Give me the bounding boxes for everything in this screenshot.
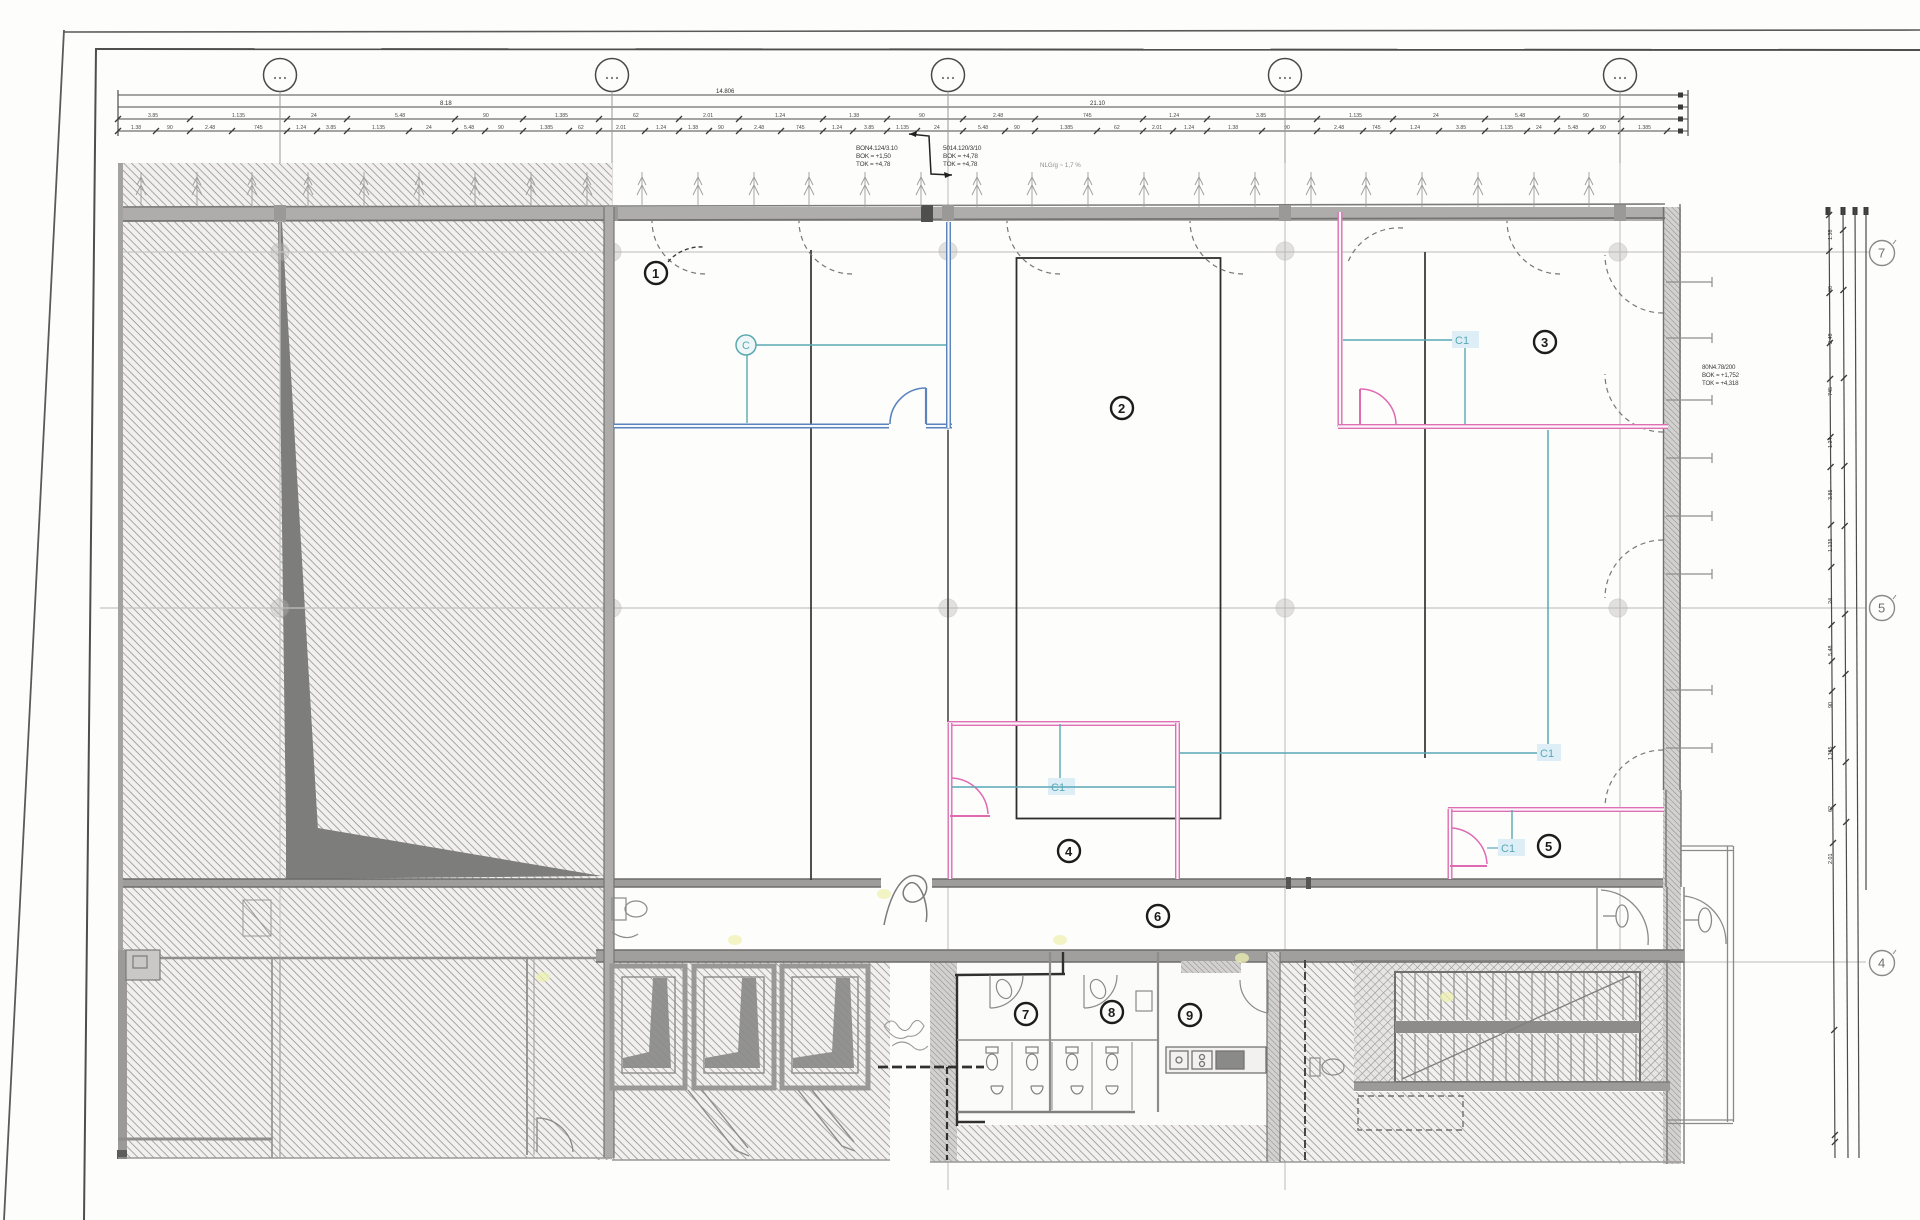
svg-text:62: 62 (578, 125, 584, 131)
svg-text:1.135: 1.135 (896, 125, 909, 131)
svg-text:BOK = +1,752: BOK = +1,752 (1702, 372, 1740, 379)
svg-text:1.24: 1.24 (1169, 113, 1179, 119)
svg-text:1.385: 1.385 (1638, 125, 1651, 131)
svg-text:90: 90 (483, 113, 489, 119)
svg-text:1.38: 1.38 (1228, 125, 1238, 131)
svg-text:24: 24 (1536, 125, 1542, 131)
svg-text:24: 24 (1433, 113, 1439, 119)
svg-text:NLG/g ~ 1,7 %: NLG/g ~ 1,7 % (1040, 162, 1081, 169)
svg-text:1.24: 1.24 (296, 125, 306, 131)
svg-text:745: 745 (1372, 125, 1381, 131)
svg-text:1.385: 1.385 (555, 113, 568, 119)
svg-text:90: 90 (498, 125, 504, 131)
svg-text:C1: C1 (1051, 782, 1065, 794)
svg-text:1.385: 1.385 (540, 125, 553, 131)
svg-text:90: 90 (1828, 286, 1834, 292)
svg-text:7: 7 (1878, 246, 1885, 261)
svg-text:C: C (742, 340, 750, 352)
svg-text:BON4.124/3.10: BON4.124/3.10 (856, 145, 898, 152)
svg-text:5.48: 5.48 (464, 125, 474, 131)
svg-text:5.48: 5.48 (1828, 646, 1834, 657)
svg-text:24: 24 (311, 113, 317, 119)
svg-text:62: 62 (1114, 125, 1120, 131)
svg-text:8: 8 (1108, 1005, 1115, 1020)
svg-text:5: 5 (1878, 601, 1885, 616)
svg-text:1.24: 1.24 (656, 125, 666, 131)
svg-text:5014.120/3/10: 5014.120/3/10 (943, 145, 982, 152)
svg-text:90: 90 (718, 125, 724, 131)
svg-text:1.24: 1.24 (832, 125, 842, 131)
svg-text:1.24: 1.24 (775, 113, 785, 119)
svg-text:4: 4 (1878, 956, 1885, 971)
svg-text:90: 90 (1600, 125, 1606, 131)
svg-text:2.01: 2.01 (616, 125, 626, 131)
svg-text:2.01: 2.01 (1828, 854, 1834, 865)
svg-text:1: 1 (652, 266, 659, 281)
svg-text:4: 4 (1065, 844, 1073, 859)
svg-text:745: 745 (1828, 387, 1834, 396)
svg-text:3: 3 (1541, 335, 1548, 350)
svg-text:90: 90 (1828, 702, 1834, 708)
svg-text:2.48: 2.48 (754, 125, 764, 131)
svg-text:3.85: 3.85 (1256, 113, 1266, 119)
svg-text:1.385: 1.385 (1828, 747, 1834, 761)
svg-text:3.85: 3.85 (148, 113, 158, 119)
svg-text:1.38: 1.38 (688, 125, 698, 131)
svg-text:C1: C1 (1540, 748, 1554, 760)
svg-text:8.18: 8.18 (440, 101, 452, 107)
svg-text:90: 90 (1583, 113, 1589, 119)
svg-text:3.85: 3.85 (1456, 125, 1466, 131)
svg-text:1.135: 1.135 (372, 125, 385, 131)
svg-text:1.24: 1.24 (1184, 125, 1194, 131)
svg-text:14.806: 14.806 (716, 89, 735, 95)
svg-text:745: 745 (1083, 113, 1092, 119)
svg-text:1.135: 1.135 (1500, 125, 1513, 131)
svg-text:745: 745 (796, 125, 805, 131)
svg-text:3.85: 3.85 (326, 125, 336, 131)
svg-text:90: 90 (1014, 125, 1020, 131)
svg-text:90: 90 (919, 113, 925, 119)
svg-text:C1: C1 (1455, 335, 1469, 347)
svg-text:1.24: 1.24 (1828, 438, 1834, 449)
svg-text:1.135: 1.135 (1828, 539, 1834, 553)
svg-text:3.85: 3.85 (864, 125, 874, 131)
svg-text:745: 745 (254, 125, 263, 131)
svg-text:9: 9 (1186, 1008, 1193, 1023)
svg-text:1.24: 1.24 (1410, 125, 1420, 131)
svg-text:1.135: 1.135 (232, 113, 245, 119)
svg-text:2.01: 2.01 (1152, 125, 1162, 131)
svg-text:21.10: 21.10 (1090, 101, 1106, 107)
svg-text:5.48: 5.48 (978, 125, 988, 131)
svg-text:2.48: 2.48 (1828, 334, 1834, 345)
svg-text:24: 24 (1828, 598, 1834, 604)
svg-text:90: 90 (167, 125, 173, 131)
svg-text:5: 5 (1545, 839, 1552, 854)
svg-text:62: 62 (633, 113, 639, 119)
svg-text:1.38: 1.38 (1828, 230, 1834, 241)
svg-text:5.48: 5.48 (1568, 125, 1578, 131)
svg-text:2.48: 2.48 (1334, 125, 1344, 131)
svg-text:TOK = +4,78: TOK = +4,78 (856, 161, 891, 168)
svg-text:TOK = +4,318: TOK = +4,318 (1702, 380, 1739, 387)
svg-text:1.38: 1.38 (131, 125, 141, 131)
svg-text:6: 6 (1154, 909, 1161, 924)
svg-text:2.01: 2.01 (703, 113, 713, 119)
svg-text:1.385: 1.385 (1060, 125, 1073, 131)
svg-text:24: 24 (426, 125, 432, 131)
svg-text:5.48: 5.48 (395, 113, 405, 119)
svg-text:TOK = +4,78: TOK = +4,78 (943, 161, 978, 168)
svg-text:2.48: 2.48 (993, 113, 1003, 119)
svg-text:BOK = +1,50: BOK = +1,50 (856, 153, 891, 160)
svg-text:C1: C1 (1501, 843, 1515, 855)
svg-text:3.85: 3.85 (1828, 490, 1834, 501)
svg-text:BOK = +4,78: BOK = +4,78 (943, 153, 978, 160)
svg-text:5.48: 5.48 (1515, 113, 1525, 119)
svg-text:2: 2 (1118, 401, 1125, 416)
svg-text:24: 24 (934, 125, 940, 131)
svg-text:1.135: 1.135 (1349, 113, 1362, 119)
svg-text:80N4.78/200: 80N4.78/200 (1702, 364, 1736, 371)
svg-text:62: 62 (1828, 806, 1834, 812)
svg-text:1.38: 1.38 (849, 113, 859, 119)
svg-text:2.48: 2.48 (205, 125, 215, 131)
svg-text:7: 7 (1022, 1007, 1029, 1022)
